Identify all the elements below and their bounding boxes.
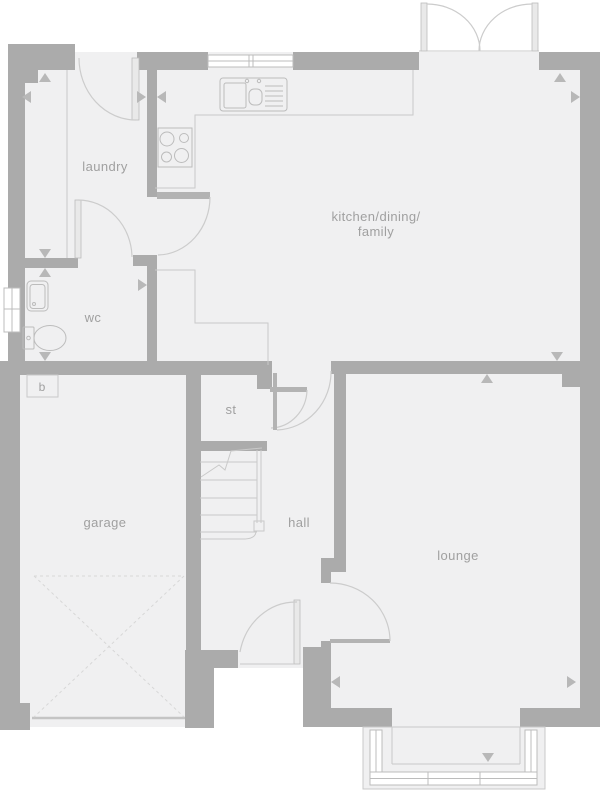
label-kitchen-line1: kitchen/dining/	[331, 209, 420, 224]
label-st: st	[226, 402, 237, 417]
french-door-right-swing	[479, 4, 532, 51]
label-lounge: lounge	[437, 548, 478, 563]
wall-st-stub	[257, 361, 272, 389]
label-wc: wc	[84, 310, 102, 325]
wall-hall-lounge-mid	[321, 570, 331, 583]
wall-top-3	[293, 52, 419, 70]
wall-right-step	[562, 373, 582, 387]
label-boiler: b	[39, 380, 46, 394]
wall-laundry-kitchen-upper	[147, 52, 157, 197]
wall-garage-left	[0, 361, 20, 730]
label-kitchen-line2: family	[358, 224, 394, 239]
french-doors	[419, 3, 539, 51]
wall-garage-corner	[0, 703, 30, 730]
label-laundry: laundry	[82, 159, 128, 174]
french-door-right-leaf	[532, 3, 538, 51]
wall-laundry-wc	[20, 258, 78, 268]
wall-hall-lounge-upper	[334, 373, 346, 560]
wall-right	[580, 52, 600, 727]
wall-hall-lounge-jog	[321, 558, 346, 572]
wall-porch-right-block	[303, 647, 331, 727]
wc-window	[4, 288, 20, 332]
french-door-left-leaf	[421, 3, 427, 51]
floor-plan: laundry kitchen/dining/ family wc st b g…	[0, 0, 601, 794]
wall-laundry-kitchen-lower	[147, 255, 157, 365]
label-hall: hall	[288, 515, 310, 530]
kitchen-window	[208, 55, 293, 67]
wall-front-door-left	[185, 650, 238, 668]
wall-garage-right	[186, 373, 201, 653]
wall-kitchen-lounge	[331, 361, 583, 374]
floor-plan-page: laundry kitchen/dining/ family wc st b g…	[0, 0, 601, 794]
wall-lounge-bottom-2	[520, 708, 600, 727]
wall-mid-band	[0, 361, 272, 375]
wall-laundry-wc-stub	[133, 255, 149, 266]
label-garage: garage	[84, 515, 127, 530]
wall-lounge-bottom-1	[331, 708, 392, 727]
french-door-left-swing	[427, 4, 480, 51]
